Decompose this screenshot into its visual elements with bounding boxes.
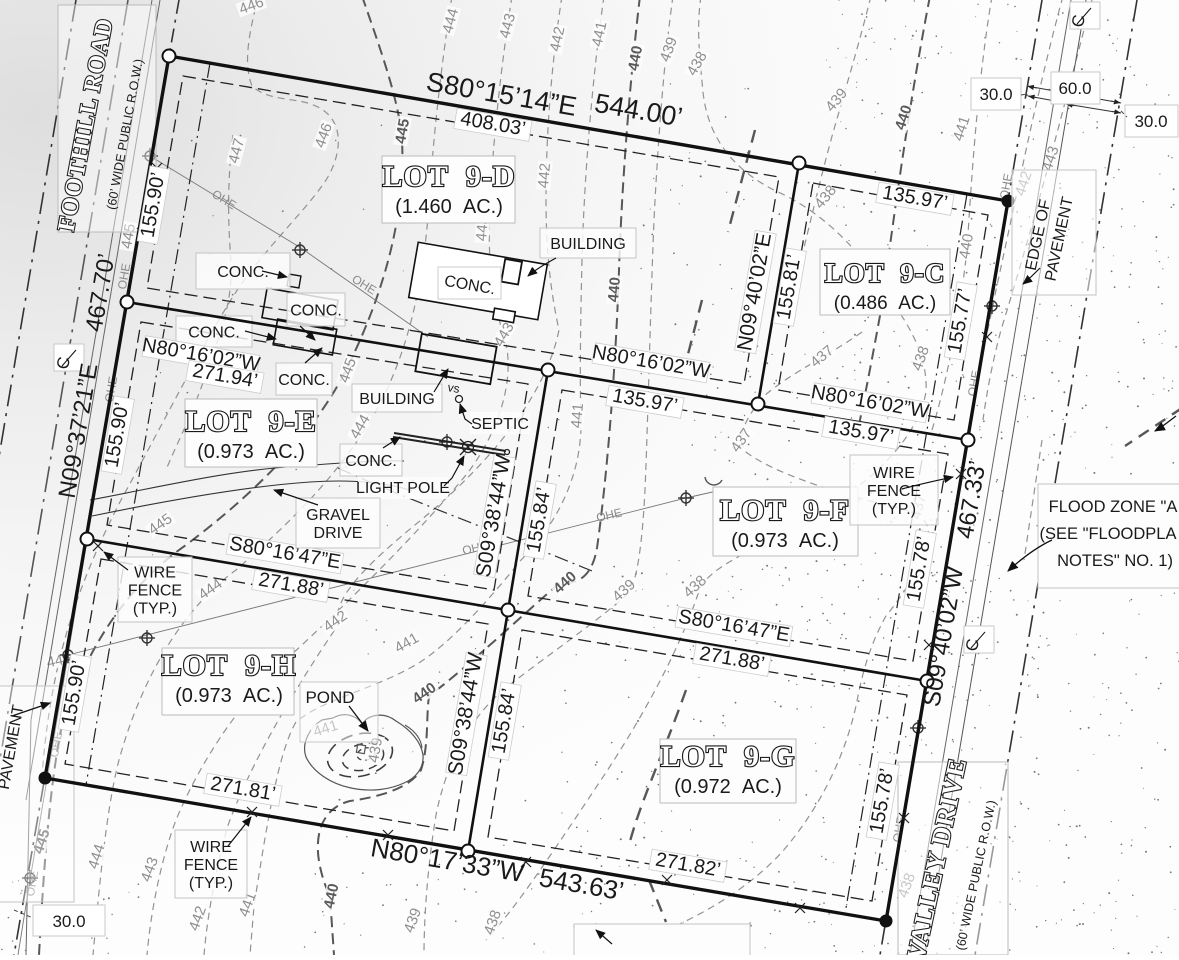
svg-text:(1.460 AC.): (1.460 AC.) (395, 196, 503, 218)
svg-text:CONC.: CONC. (278, 372, 330, 389)
svg-text:(0.973 AC.): (0.973 AC.) (175, 685, 283, 707)
svg-text:LIGHT POLE: LIGHT POLE (356, 480, 450, 497)
svg-text:440: 440 (605, 276, 624, 302)
svg-text:(SEE "FLOODPLA: (SEE "FLOODPLA (1040, 525, 1177, 543)
svg-text:(TYP.): (TYP.) (133, 600, 177, 617)
svg-text:30.0: 30.0 (1134, 112, 1167, 131)
svg-text:60.0: 60.0 (1058, 79, 1091, 98)
svg-text:(0.972 AC.): (0.972 AC.) (674, 776, 782, 798)
svg-text:441: 441 (568, 402, 587, 428)
svg-text:GRAVEL: GRAVEL (306, 507, 370, 524)
svg-text:DRIVE: DRIVE (314, 525, 363, 542)
svg-text:LOT 9-C: LOT 9-C (825, 258, 946, 288)
svg-text:(0.486 AC.): (0.486 AC.) (834, 293, 936, 314)
svg-text:FENCE: FENCE (867, 483, 921, 500)
svg-text:LOT 9-H: LOT 9-H (162, 649, 297, 682)
svg-text:LOT 9-G: LOT 9-G (661, 740, 796, 773)
svg-text:LOT 9-F: LOT 9-F (720, 494, 850, 527)
svg-text:CONC.: CONC. (188, 324, 240, 341)
svg-text:(0.973 AC.): (0.973 AC.) (197, 441, 305, 463)
svg-text:442: 442 (535, 162, 554, 188)
svg-text:POND: POND (305, 688, 354, 707)
svg-text:30.0: 30.0 (52, 912, 85, 931)
svg-text:(TYP.): (TYP.) (872, 501, 916, 518)
svg-text:FENCE: FENCE (128, 582, 182, 599)
svg-text:WIRE: WIRE (190, 839, 232, 856)
svg-text:BUILDING: BUILDING (359, 391, 435, 408)
svg-text:FLOOD ZONE "A: FLOOD ZONE "A (1049, 498, 1178, 516)
svg-text:WIRE: WIRE (873, 465, 915, 482)
svg-text:LOT 9-D: LOT 9-D (382, 160, 515, 193)
svg-text:30.0: 30.0 (979, 85, 1012, 104)
svg-text:NOTES" NO. 1): NOTES" NO. 1) (1057, 552, 1173, 570)
svg-text:(TYP.): (TYP.) (189, 875, 233, 892)
svg-text:CONC.: CONC. (345, 453, 397, 470)
svg-text:CONC.: CONC. (217, 264, 269, 281)
svg-text:vs: vs (447, 380, 461, 396)
svg-text:SEPTIC: SEPTIC (471, 416, 529, 433)
svg-text:(0.973 AC.): (0.973 AC.) (731, 530, 839, 552)
svg-text:CONC.: CONC. (290, 302, 342, 319)
svg-text:BUILDING: BUILDING (550, 236, 626, 253)
svg-text:WIRE: WIRE (134, 564, 176, 581)
svg-text:FENCE: FENCE (184, 857, 238, 874)
svg-text:LOT 9-E: LOT 9-E (185, 405, 316, 438)
